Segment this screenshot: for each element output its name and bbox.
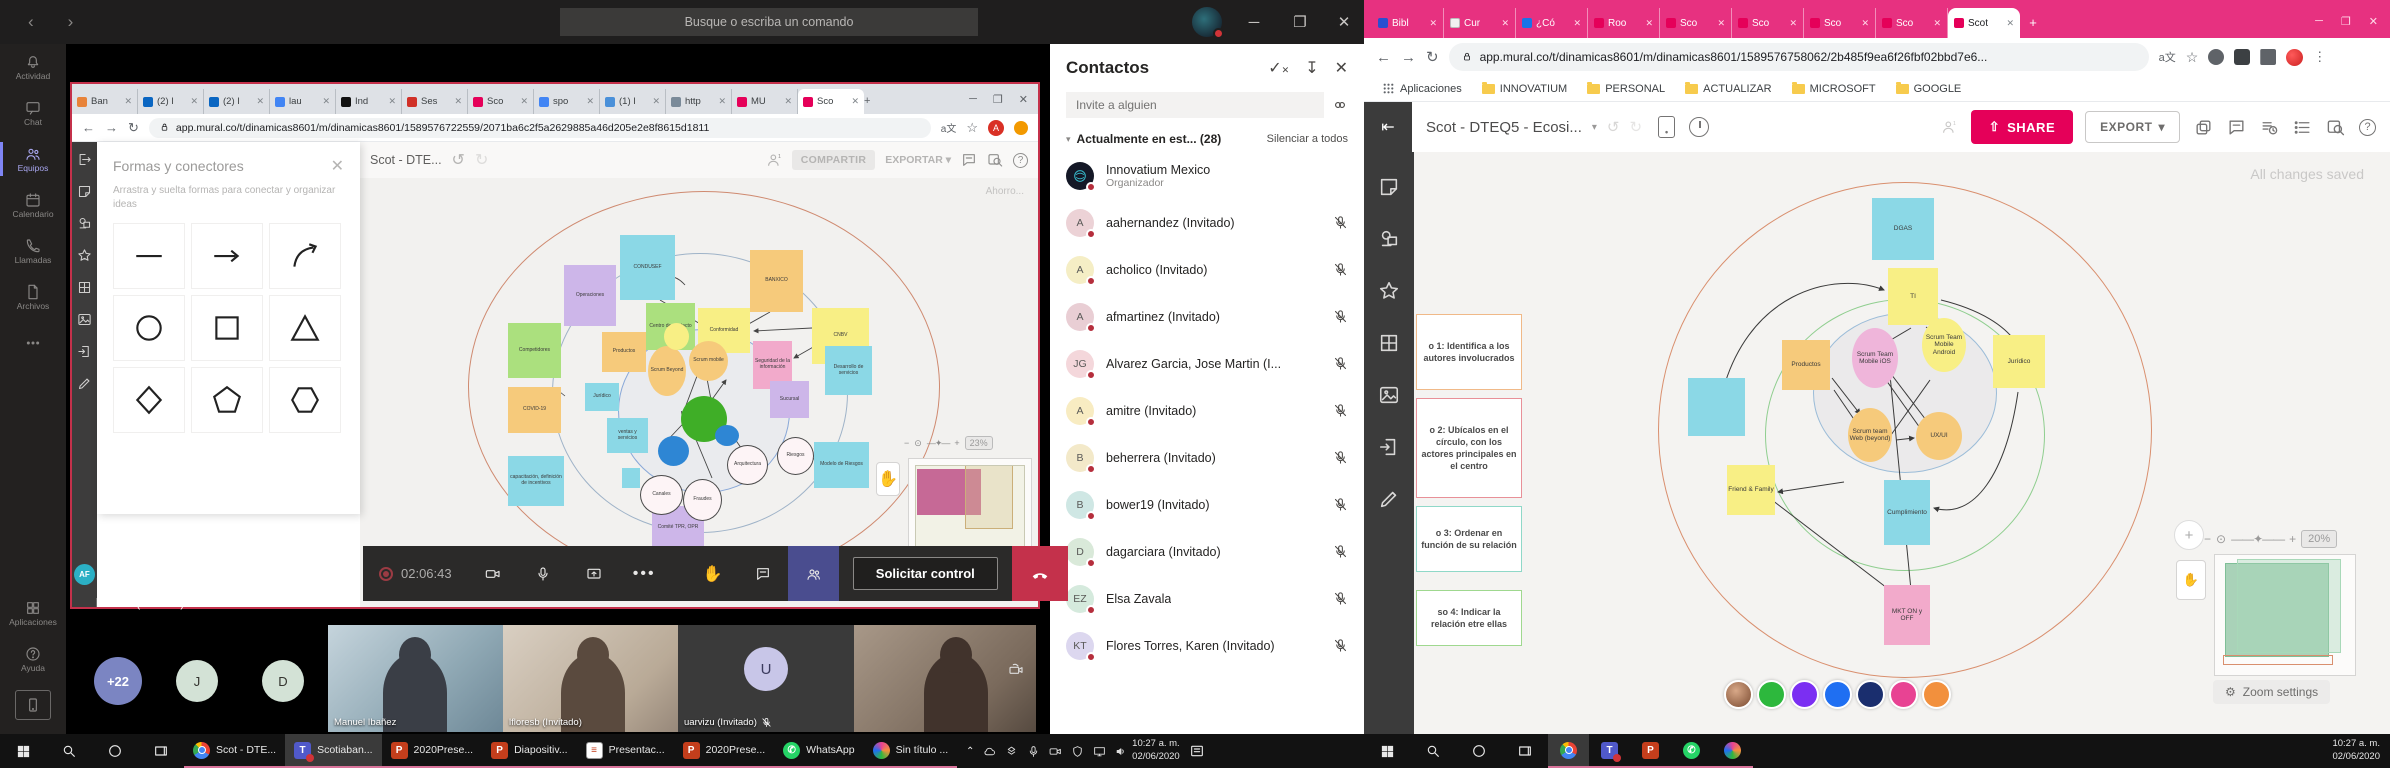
- close-tab-icon[interactable]: ✕: [256, 96, 264, 107]
- sticky-note[interactable]: [664, 323, 689, 350]
- redo-icon[interactable]: ↻: [1629, 118, 1642, 136]
- overflow-participants[interactable]: +22: [94, 657, 142, 705]
- copy-link-icon[interactable]: [1332, 97, 1348, 113]
- sticky-note[interactable]: Competidores: [508, 323, 561, 378]
- mic-off-icon[interactable]: [1333, 638, 1348, 653]
- bookmark-star-icon[interactable]: ☆: [966, 120, 978, 136]
- favicon: [77, 97, 87, 107]
- browser-tab[interactable]: Sco✕: [468, 89, 534, 114]
- close-tab-icon[interactable]: ✕: [388, 96, 396, 107]
- sidebar-item-more[interactable]: [0, 320, 66, 366]
- mic-off-icon[interactable]: [1333, 450, 1348, 465]
- browser-tab[interactable]: (1) I✕: [600, 89, 666, 114]
- taskbar-left: Scot - DTE...TScotiaban...P2020Prese...P…: [0, 734, 1364, 768]
- minimize-icon[interactable]: ─: [969, 93, 977, 106]
- browser-tab[interactable]: Bibl✕: [1372, 8, 1444, 38]
- close-tab-icon[interactable]: ✕: [1717, 18, 1725, 29]
- mic-off-icon[interactable]: [1333, 262, 1348, 277]
- taskbar-app[interactable]: P2020Prese...: [382, 734, 483, 768]
- sticky-note[interactable]: Canales: [640, 475, 683, 515]
- favicon: [1450, 18, 1460, 28]
- zoom-control[interactable]: −⊙——✦——+ 20%: [2204, 530, 2337, 548]
- browser-tab[interactable]: lau✕: [270, 89, 336, 114]
- collaborator-avatar[interactable]: [1856, 680, 1885, 709]
- forward-icon[interactable]: ›: [68, 12, 74, 32]
- sticky-note[interactable]: BANXICO: [750, 250, 803, 312]
- close-tab-icon[interactable]: ✕: [851, 96, 859, 107]
- taskbar-app[interactable]: [1712, 734, 1753, 768]
- outline-icon[interactable]: [2293, 118, 2312, 137]
- download-list-icon[interactable]: ↧: [1305, 58, 1318, 78]
- avatar: A: [1066, 256, 1094, 284]
- close-icon[interactable]: ✕: [331, 156, 344, 176]
- close-tab-icon[interactable]: ✕: [1573, 18, 1581, 29]
- shape-curved-arrow[interactable]: [269, 223, 341, 289]
- browser-tab[interactable]: Sco✕: [1804, 8, 1876, 38]
- extension-icon[interactable]: [2208, 49, 2224, 65]
- chrome-toolbar: ← → ↻ app.mural.co/t/dinamicas8601/m/din…: [1364, 38, 2390, 76]
- share-screen-button[interactable]: [569, 546, 619, 601]
- close-icon[interactable]: ✕: [2369, 15, 2378, 28]
- sidebar-item-ayuda[interactable]: Ayuda: [0, 636, 66, 682]
- avatar[interactable]: [1192, 7, 1222, 37]
- forward-icon[interactable]: →: [105, 120, 118, 135]
- sticky-note[interactable]: Scrum Team Mobile Android: [1922, 318, 1966, 372]
- shape-diamond[interactable]: [113, 367, 185, 433]
- request-control-button[interactable]: Solicitar control: [853, 557, 998, 590]
- restore-icon[interactable]: ❐: [2341, 15, 2351, 28]
- search-button[interactable]: [1410, 734, 1456, 768]
- forward-icon[interactable]: →: [1401, 49, 1416, 66]
- raise-hand-button[interactable]: ✋: [687, 546, 737, 601]
- manage-attendees-icon[interactable]: ✓✕: [1268, 58, 1289, 78]
- invite-input[interactable]: Invite a alguien: [1066, 92, 1324, 118]
- apps-shortcut[interactable]: Aplicaciones: [1374, 82, 1470, 95]
- browser-tab[interactable]: ¿Có✕: [1516, 8, 1588, 38]
- bookmark-folder[interactable]: ACTUALIZAR: [1677, 83, 1779, 95]
- favicon: [209, 97, 219, 107]
- grid-icon[interactable]: [77, 280, 92, 295]
- close-tab-icon[interactable]: ✕: [652, 96, 660, 107]
- sticky-note[interactable]: Friend & Family: [1727, 465, 1775, 515]
- back-icon[interactable]: ‹: [28, 12, 34, 32]
- browser-tab[interactable]: Sco✕: [1876, 8, 1948, 38]
- browser-tab[interactable]: Ind✕: [336, 89, 402, 114]
- participant-row[interactable]: B beherrera (Invitado): [1066, 434, 1348, 481]
- video-tile[interactable]: lfloresb (Invitado): [503, 625, 678, 732]
- minimize-icon[interactable]: ─: [1232, 0, 1276, 44]
- bookmarks-bar: AplicacionesINNOVATIUMPERSONALACTUALIZAR…: [1364, 76, 2390, 102]
- sticky-note[interactable]: [622, 468, 640, 488]
- url-bar[interactable]: app.mural.co/t/dinamicas8601/m/dinamicas…: [1449, 43, 2149, 71]
- taskbar-app[interactable]: [1548, 734, 1589, 768]
- facilitate-icon[interactable]: 1: [766, 152, 782, 168]
- timer-icon[interactable]: [1689, 117, 1709, 137]
- sticky-note[interactable]: Desarrollo de servicios: [825, 346, 872, 395]
- comment-icon[interactable]: [961, 152, 977, 168]
- bookmark-star-icon[interactable]: ☆: [2186, 49, 2199, 66]
- image-icon[interactable]: [1378, 384, 1400, 406]
- folder-icon: [1896, 84, 1909, 94]
- participant-row[interactable]: KT Flores Torres, Karen (Invitado): [1066, 622, 1348, 669]
- sticky-note[interactable]: ventas y servicios: [607, 418, 648, 453]
- shape-circle[interactable]: [113, 295, 185, 361]
- svg-text:1: 1: [1953, 121, 1956, 127]
- presenter-label: lfloresb (Invitado): [96, 598, 184, 610]
- mute-all-button[interactable]: Silenciar a todos: [1267, 133, 1348, 145]
- participant-bubble[interactable]: D: [262, 660, 304, 702]
- chat-button[interactable]: [738, 546, 788, 601]
- extension-icon[interactable]: [1014, 121, 1028, 135]
- taskbar-app[interactable]: TScotiaban...: [285, 734, 381, 768]
- favicon: [1522, 18, 1532, 28]
- favicon: [1810, 18, 1820, 28]
- browser-tab[interactable]: Sco✕: [1732, 8, 1804, 38]
- hidden-icons-chevron[interactable]: ⌃: [957, 734, 983, 768]
- chevron-down-icon[interactable]: ▾: [1592, 122, 1597, 133]
- favicon: [1738, 18, 1748, 28]
- sticky-note[interactable]: Fraudes: [683, 479, 722, 521]
- close-tab-icon[interactable]: ✕: [784, 96, 792, 107]
- find-icon[interactable]: [2326, 118, 2345, 137]
- instruction-card[interactable]: o 3: Ordenar en función de su relación: [1416, 506, 1522, 572]
- reload-icon[interactable]: ↻: [128, 120, 139, 136]
- star-icon[interactable]: [1378, 280, 1400, 302]
- instruction-card[interactable]: o 2: Ubícalos en el círculo, con los act…: [1416, 398, 1522, 498]
- taskview-button[interactable]: [138, 734, 184, 768]
- sticky-note[interactable]: CONDUSEF: [620, 235, 675, 300]
- minimap[interactable]: [2214, 554, 2356, 676]
- collaborator-avatar[interactable]: [1823, 680, 1852, 709]
- share-button[interactable]: COMPARTIR: [792, 150, 876, 170]
- shared-address-bar: ← → ↻ app.mural.co/t/dinamicas8601/m/din…: [72, 114, 1038, 142]
- extension-icon[interactable]: [2260, 49, 2276, 65]
- reload-icon[interactable]: ↻: [1426, 48, 1439, 66]
- close-tab-icon[interactable]: ✕: [718, 96, 726, 107]
- star-icon[interactable]: [77, 248, 92, 263]
- video-tile[interactable]: [854, 625, 1036, 732]
- browser-tab[interactable]: Ses✕: [402, 89, 468, 114]
- close-tab-icon[interactable]: ✕: [124, 96, 132, 107]
- sticky-note[interactable]: Riesgos: [777, 437, 814, 475]
- bookmark-folder[interactable]: MICROSOFT: [1784, 83, 1884, 95]
- win-button[interactable]: [1364, 734, 1410, 768]
- taskbar-app[interactable]: ≡Presentac...: [577, 734, 674, 768]
- sidebar-item-calendario[interactable]: Calendario: [0, 182, 66, 228]
- win-button[interactable]: [0, 734, 46, 768]
- duplicate-icon[interactable]: [2194, 118, 2213, 137]
- share-button[interactable]: ⇧ SHARE: [1971, 110, 2073, 144]
- search-button[interactable]: [46, 734, 92, 768]
- board-title[interactable]: Scot - DTE...: [370, 153, 442, 167]
- bookmark-folder[interactable]: GOOGLE: [1888, 83, 1970, 95]
- collaborator-avatar[interactable]: [1724, 680, 1753, 709]
- participant-row[interactable]: EZ Elsa Zavala: [1066, 575, 1348, 622]
- taskview-button[interactable]: [1502, 734, 1548, 768]
- status-dot: [1213, 28, 1224, 39]
- pencil-icon[interactable]: [77, 376, 92, 391]
- participant-row[interactable]: A acholico (Invitado): [1066, 246, 1348, 293]
- taskbar-app[interactable]: ✆WhatsApp: [774, 734, 863, 768]
- sticky-note[interactable]: [715, 425, 739, 446]
- restore-icon[interactable]: ❐: [993, 93, 1003, 106]
- taskbar-app[interactable]: PDiapositiv...: [482, 734, 577, 768]
- taskbar-clock[interactable]: 10:27 a. m.02/06/2020: [1132, 734, 1180, 768]
- redo-icon[interactable]: ↻: [475, 150, 488, 170]
- close-icon[interactable]: ✕: [1335, 58, 1348, 78]
- sticky-note[interactable]: Scrum Team Mobile iOS: [1852, 328, 1898, 388]
- participant-row[interactable]: A afmartinez (Invitado): [1066, 293, 1348, 340]
- shapes-icon[interactable]: [1378, 228, 1400, 250]
- browser-tab[interactable]: Cur✕: [1444, 8, 1516, 38]
- cortana-button[interactable]: [1456, 734, 1502, 768]
- sticky-note[interactable]: COVID-19: [508, 387, 561, 433]
- export-button[interactable]: EXPORT ▾: [2085, 111, 2180, 143]
- favicon: [539, 97, 549, 107]
- participant-name: Flores Torres, Karen (Invitado): [1106, 639, 1275, 653]
- participant-row[interactable]: Innovatium Mexico Organizador: [1066, 152, 1348, 199]
- close-tab-icon[interactable]: ✕: [190, 96, 198, 107]
- mic-off-icon[interactable]: [1333, 215, 1348, 230]
- participant-name: uarvizu (Invitado): [684, 717, 772, 728]
- sticky-note[interactable]: UX/UI: [1916, 412, 1962, 460]
- sidebar-item-llamadas[interactable]: Llamadas: [0, 228, 66, 274]
- bookmark-folder[interactable]: INNOVATIUM: [1474, 83, 1575, 95]
- shape-square[interactable]: [191, 295, 263, 361]
- sticky-note[interactable]: TI: [1888, 268, 1938, 325]
- camera-button[interactable]: [468, 546, 518, 601]
- shape-pentagon[interactable]: [191, 367, 263, 433]
- video-tile[interactable]: U uarvizu (Invitado): [678, 625, 854, 732]
- collaborator-avatar[interactable]: [1790, 680, 1819, 709]
- mural-canvas[interactable]: Ahorro... OperacionesCONDUSEFBANXICOComp…: [360, 178, 1038, 607]
- close-tab-icon[interactable]: ✕: [586, 96, 594, 107]
- sidebar-item-chat[interactable]: Chat: [0, 90, 66, 136]
- close-tab-icon[interactable]: ✕: [1501, 18, 1509, 29]
- device-icon[interactable]: [15, 690, 51, 720]
- sticky-note[interactable]: Jurídico: [1993, 335, 2045, 388]
- pencil-icon[interactable]: [1378, 488, 1400, 510]
- sticky-note[interactable]: Scrum Beyond: [648, 346, 686, 396]
- instruction-card[interactable]: so 4: Indicar la relación etre ellas: [1416, 590, 1522, 646]
- sticky-note[interactable]: DGAS: [1872, 198, 1934, 260]
- favicon: [671, 97, 681, 107]
- hang-up-button[interactable]: [1012, 546, 1068, 601]
- grid-icon[interactable]: [1378, 332, 1400, 354]
- exportdoc-icon[interactable]: [1378, 436, 1400, 458]
- help-icon[interactable]: ?: [2359, 119, 2376, 136]
- sticky-note[interactable]: Cumplimiento: [1884, 480, 1930, 545]
- image-icon[interactable]: [77, 312, 92, 327]
- video-tile[interactable]: Manuel Ibañez: [328, 625, 503, 732]
- sidebar-item-equipos[interactable]: Equipos: [0, 136, 66, 182]
- sidebar-item-actividad[interactable]: Actividad: [0, 44, 66, 90]
- favicon: [605, 97, 615, 107]
- shapes-icon[interactable]: [77, 216, 92, 231]
- exit-icon[interactable]: [77, 152, 92, 167]
- shared-tab-strip: Ban✕ (2) I✕ (2) I✕ lau✕ Ind✕ Ses✕ Sco✕ s…: [72, 84, 1038, 114]
- taskbar-app[interactable]: P2020Prese...: [674, 734, 775, 768]
- sticky-note[interactable]: Scrum team Web (beyond): [1848, 408, 1892, 462]
- close-icon[interactable]: ✕: [1019, 93, 1028, 106]
- taskbar-app[interactable]: P: [1630, 734, 1671, 768]
- sticky-note[interactable]: Scrum mobile: [689, 341, 728, 381]
- sticky-note[interactable]: [1688, 378, 1745, 436]
- participant-name: Alvarez Garcia, Jose Martin (I...: [1106, 357, 1281, 371]
- browser-tab[interactable]: Sco✕: [798, 89, 864, 114]
- new-tab-icon[interactable]: +: [864, 95, 878, 114]
- taskbar-app[interactable]: Scot - DTE...: [184, 734, 285, 768]
- cortana-button[interactable]: [92, 734, 138, 768]
- shape-triangle[interactable]: [269, 295, 341, 361]
- hand-tool-button[interactable]: ✋: [2176, 560, 2206, 600]
- zoom-control[interactable]: −⊙—✦—+ 23%: [904, 436, 993, 450]
- find-icon[interactable]: [987, 152, 1003, 168]
- collaborator-avatar[interactable]: [1889, 680, 1918, 709]
- mic-off-icon[interactable]: [1333, 356, 1348, 371]
- close-tab-icon[interactable]: ✕: [520, 96, 528, 107]
- taskbar-app[interactable]: Sin título ...: [864, 734, 958, 768]
- sticky-note[interactable]: Operaciones: [564, 265, 616, 326]
- sticky-note[interactable]: Modelo de Riesgos: [814, 442, 869, 488]
- activity-icon[interactable]: [2260, 118, 2279, 137]
- close-tab-icon[interactable]: ✕: [1429, 18, 1437, 29]
- export-button[interactable]: EXPORTAR ▾: [885, 154, 951, 166]
- url-bar[interactable]: app.mural.co/t/dinamicas8601/m/dinamicas…: [149, 118, 931, 138]
- sticky-note[interactable]: capacitación, definición de incentivos: [508, 456, 564, 506]
- add-collaborator-button[interactable]: +: [2174, 520, 2204, 550]
- shape-hexagon[interactable]: [269, 367, 341, 433]
- browser-tab[interactable]: Scot✕: [1948, 8, 2020, 38]
- sidebar-item-archivos[interactable]: Archivos: [0, 274, 66, 320]
- folder-icon: [1792, 84, 1805, 94]
- browser-tab[interactable]: MU✕: [732, 89, 798, 114]
- undo-icon[interactable]: ↺: [452, 150, 465, 170]
- facilitate-icon[interactable]: 1: [1941, 119, 1957, 135]
- mural-toolbar: [72, 142, 97, 607]
- close-icon[interactable]: ✕: [1322, 0, 1366, 44]
- mic-off-icon[interactable]: [1333, 544, 1348, 559]
- browser-tab[interactable]: Sco✕: [1660, 8, 1732, 38]
- participant-row[interactable]: JG Alvarez Garcia, Jose Martin (I...: [1066, 340, 1348, 387]
- flip-camera-icon[interactable]: [1008, 662, 1024, 678]
- participant-name: afmartinez (Invitado): [1106, 310, 1220, 324]
- taskbar-app[interactable]: ✆: [1671, 734, 1712, 768]
- browser-tab[interactable]: (2) I✕: [204, 89, 270, 114]
- profile-avatar[interactable]: A: [988, 120, 1004, 136]
- back-icon[interactable]: ←: [82, 120, 95, 135]
- maximize-icon[interactable]: ❐: [1278, 0, 1322, 44]
- shape-line[interactable]: [113, 223, 185, 289]
- sticky-note[interactable]: MKT ON y OFF: [1884, 585, 1930, 645]
- close-tab-icon[interactable]: ✕: [454, 96, 462, 107]
- shapes-panel: Formas y conectores ✕ Arrastra y suelta …: [97, 142, 360, 514]
- participant-row[interactable]: A amitre (Invitado): [1066, 387, 1348, 434]
- system-tray[interactable]: [983, 734, 1128, 768]
- participant-bubble[interactable]: J: [176, 660, 218, 702]
- help-icon[interactable]: ?: [1013, 153, 1028, 168]
- participant-row[interactable]: B bower19 (Invitado): [1066, 481, 1348, 528]
- sticky-note[interactable]: Sucursal: [770, 381, 809, 418]
- taskbar-clock[interactable]: 10:27 a. m.02/06/2020: [2332, 734, 2380, 768]
- sidebar-item-aplicaciones[interactable]: Aplicaciones: [0, 590, 66, 636]
- mic-off-icon[interactable]: [1333, 497, 1348, 512]
- mic-button[interactable]: [518, 546, 568, 601]
- sticky-note[interactable]: [658, 436, 689, 466]
- zoom-settings-button[interactable]: ⚙ Zoom settings: [2213, 680, 2330, 704]
- mural-canvas[interactable]: All changes saved o 1: Identifica a los …: [1414, 152, 2390, 768]
- note-icon[interactable]: [77, 184, 92, 199]
- participant-row[interactable]: A aahernandez (Invitado): [1066, 199, 1348, 246]
- action-center-icon[interactable]: [1180, 734, 1214, 768]
- note-icon[interactable]: [1378, 176, 1400, 198]
- browser-tab[interactable]: Roo✕: [1588, 8, 1660, 38]
- minimize-icon[interactable]: ─: [2315, 15, 2323, 28]
- lock-icon: [159, 122, 170, 133]
- close-tab-icon[interactable]: ✕: [1789, 18, 1797, 29]
- taskbar-right: TP✆ 10:27 a. m.02/06/2020: [1364, 734, 2390, 768]
- close-tab-icon[interactable]: ✕: [1645, 18, 1653, 29]
- teams-search-input[interactable]: Busque o escriba un comando: [560, 8, 978, 36]
- browser-tab[interactable]: spo✕: [534, 89, 600, 114]
- avatar: B: [1066, 491, 1094, 519]
- browser-tab[interactable]: (2) I✕: [138, 89, 204, 114]
- comment-icon[interactable]: [2227, 118, 2246, 137]
- shape-arrow[interactable]: [191, 223, 263, 289]
- collaborator-avatar[interactable]: [1757, 680, 1786, 709]
- participant-name: Elsa Zavala: [1106, 592, 1171, 606]
- sticky-note[interactable]: Jurídico: [585, 383, 619, 411]
- exit-board-icon[interactable]: ⇤: [1364, 102, 1412, 152]
- board-title[interactable]: Scot - DTEQ5 - Ecosi...: [1426, 119, 1582, 136]
- sticky-note[interactable]: Arquitectura: [727, 445, 768, 485]
- sticky-note[interactable]: Productos: [602, 332, 646, 372]
- back-icon[interactable]: ←: [1376, 49, 1391, 66]
- hand-tool-button[interactable]: ✋: [876, 462, 900, 496]
- exportdoc-icon[interactable]: [77, 344, 92, 359]
- extension-icon[interactable]: [2286, 49, 2303, 66]
- new-tab-icon[interactable]: +: [2020, 15, 2046, 38]
- translate-icon[interactable]: a文: [2159, 49, 2176, 65]
- mic-off-icon[interactable]: [1333, 403, 1348, 418]
- sticky-note[interactable]: Productos: [1782, 340, 1830, 390]
- translate-icon[interactable]: a文: [941, 120, 957, 135]
- extension-icon[interactable]: [2234, 49, 2250, 65]
- private-mode-icon[interactable]: •: [1658, 116, 1675, 138]
- close-tab-icon[interactable]: ✕: [2006, 18, 2014, 29]
- bookmark-folder[interactable]: PERSONAL: [1579, 83, 1673, 95]
- participant-row[interactable]: D dagarciara (Invitado): [1066, 528, 1348, 575]
- close-tab-icon[interactable]: ✕: [1861, 18, 1869, 29]
- undo-icon[interactable]: ↺: [1607, 118, 1620, 136]
- close-tab-icon[interactable]: ✕: [322, 96, 330, 107]
- browser-tab[interactable]: Ban✕: [72, 89, 138, 114]
- collapse-icon[interactable]: ▾: [1066, 134, 1071, 145]
- instruction-card[interactable]: o 1: Identifica a los autores involucrad…: [1416, 314, 1522, 390]
- taskbar-app[interactable]: T: [1589, 734, 1630, 768]
- more-options-button[interactable]: •••: [619, 546, 669, 601]
- browser-tab[interactable]: http✕: [666, 89, 732, 114]
- svg-text:1: 1: [778, 154, 781, 160]
- collaborator-avatar[interactable]: [1922, 680, 1951, 709]
- mic-off-icon[interactable]: [1333, 591, 1348, 606]
- mural-user-avatar[interactable]: AF: [74, 564, 95, 585]
- chrome-menu-icon[interactable]: ⋮: [2313, 49, 2326, 65]
- mic-off-icon[interactable]: [1333, 309, 1348, 324]
- favicon: [143, 97, 153, 107]
- participants-button[interactable]: [788, 546, 838, 601]
- close-tab-icon[interactable]: ✕: [1933, 18, 1941, 29]
